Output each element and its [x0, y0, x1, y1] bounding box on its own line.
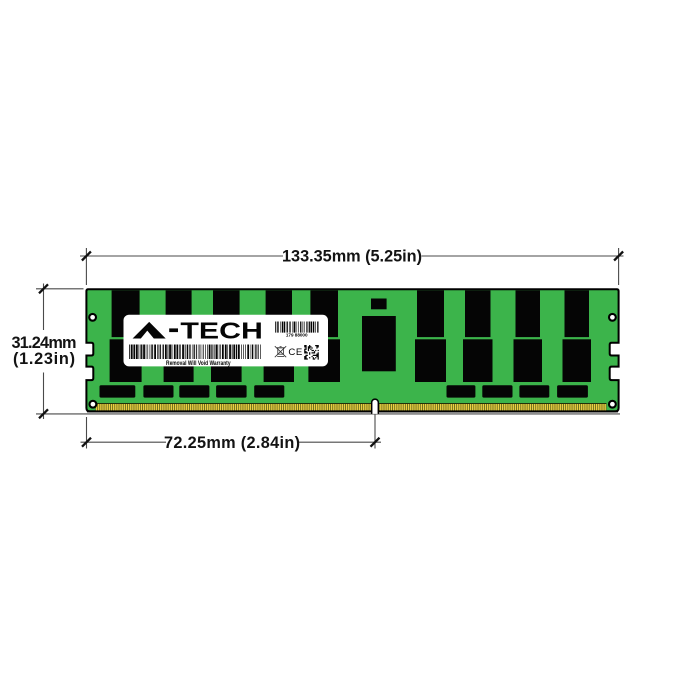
- svg-text:31.24mm: 31.24mm: [12, 334, 77, 352]
- svg-text:72.25mm (2.84in): 72.25mm (2.84in): [164, 434, 300, 452]
- svg-text:Removal Will Void Warranty: Removal Will Void Warranty: [166, 361, 231, 367]
- svg-text:TECH: TECH: [180, 318, 263, 344]
- svg-text:133.35mm (5.25in): 133.35mm (5.25in): [282, 247, 422, 265]
- svg-text:(1.23in): (1.23in): [13, 350, 75, 368]
- svg-text:CE: CE: [288, 347, 302, 358]
- svg-text:179 88000: 179 88000: [286, 333, 308, 338]
